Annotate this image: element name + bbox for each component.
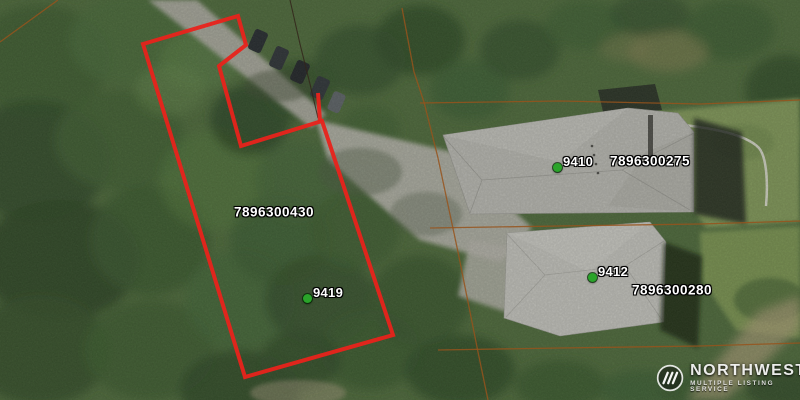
satellite-scene bbox=[0, 0, 800, 400]
nwmls-watermark: NORTHWEST MULTIPLE LISTING SERVICE bbox=[656, 363, 800, 394]
watermark-org-text: NORTHWEST bbox=[690, 363, 800, 379]
nwmls-logo-icon bbox=[656, 363, 684, 393]
aerial-map: 7896300430789630027578963002809410941294… bbox=[0, 0, 800, 400]
subject-parcel-boundary-stub bbox=[318, 93, 320, 121]
watermark-tagline-text: MULTIPLE LISTING SERVICE bbox=[690, 381, 800, 394]
grain-light bbox=[0, 0, 800, 400]
